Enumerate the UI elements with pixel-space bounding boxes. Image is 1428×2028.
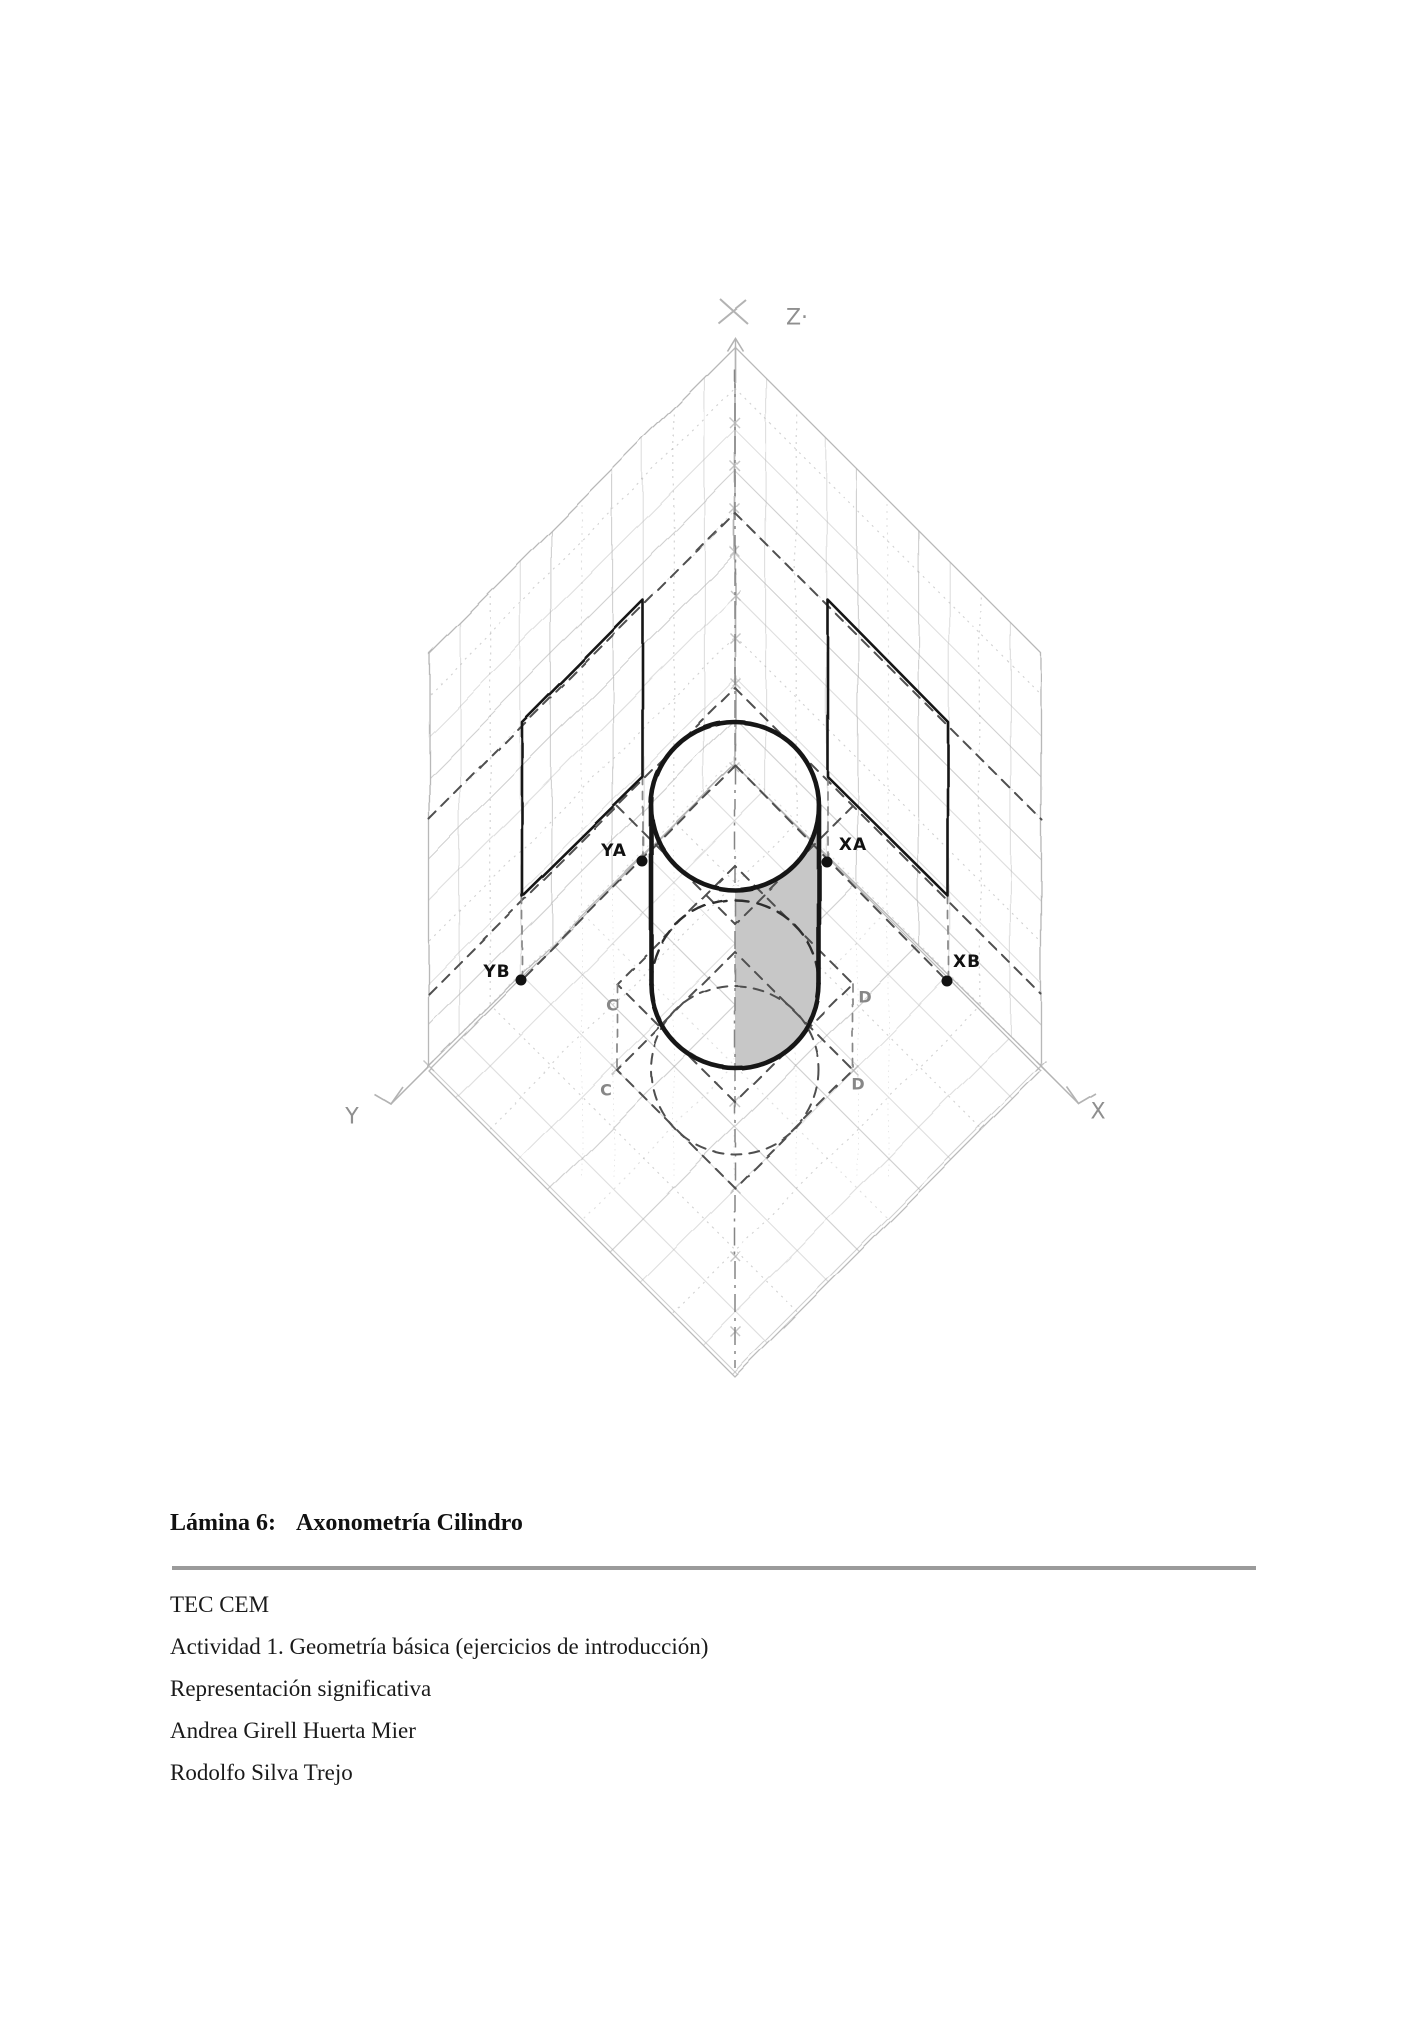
point-ya-dot [637, 856, 648, 867]
point-yb-dot [516, 975, 527, 986]
point-xb-dot [942, 976, 953, 987]
x-axis-line [1041, 1066, 1079, 1104]
y-axis-label: Y [345, 1105, 358, 1130]
label-d-upper: D [858, 988, 871, 1007]
point-label-xb: XB [953, 952, 981, 972]
caption-title: Axonometría Cilindro [296, 1510, 523, 1536]
label-c-lower: C [600, 1081, 612, 1100]
z-axis-label: Z· [786, 306, 808, 331]
point-label-xa: XA [839, 835, 867, 855]
footer-line-activity: Actividad 1. Geometría básica (ejercicio… [170, 1626, 708, 1668]
label-c-upper: C [606, 996, 618, 1015]
left-wall-grid [415, 330, 750, 1090]
footer-line-subtitle: Representación significativa [170, 1668, 708, 1710]
point-label-ya: YA [601, 841, 627, 861]
footer-text: TEC CEM Actividad 1. Geometría básica (e… [170, 1584, 708, 1794]
caption-divider [172, 1566, 1256, 1570]
footer-line-author-2: Rodolfo Silva Trejo [170, 1752, 708, 1794]
footer-line-author-1: Andrea Girell Huerta Mier [170, 1710, 708, 1752]
label-d-lower: D [851, 1075, 864, 1094]
document-page: Z· Y X YA XA YB XB C C D D Lámina 6:Axon… [0, 0, 1428, 2028]
x-axis-label: X [1090, 1100, 1105, 1125]
axis-projection-lines [523, 765, 945, 979]
footer-line-institution: TEC CEM [170, 1584, 708, 1626]
y-axis-line [391, 1066, 429, 1104]
point-xa-dot [822, 857, 833, 868]
point-label-yb: YB [483, 962, 510, 982]
caption-label: Lámina 6: [170, 1510, 276, 1536]
z-apex-cross-icon [718, 299, 748, 324]
figure-caption: Lámina 6:Axonometría Cilindro [170, 1510, 523, 1537]
